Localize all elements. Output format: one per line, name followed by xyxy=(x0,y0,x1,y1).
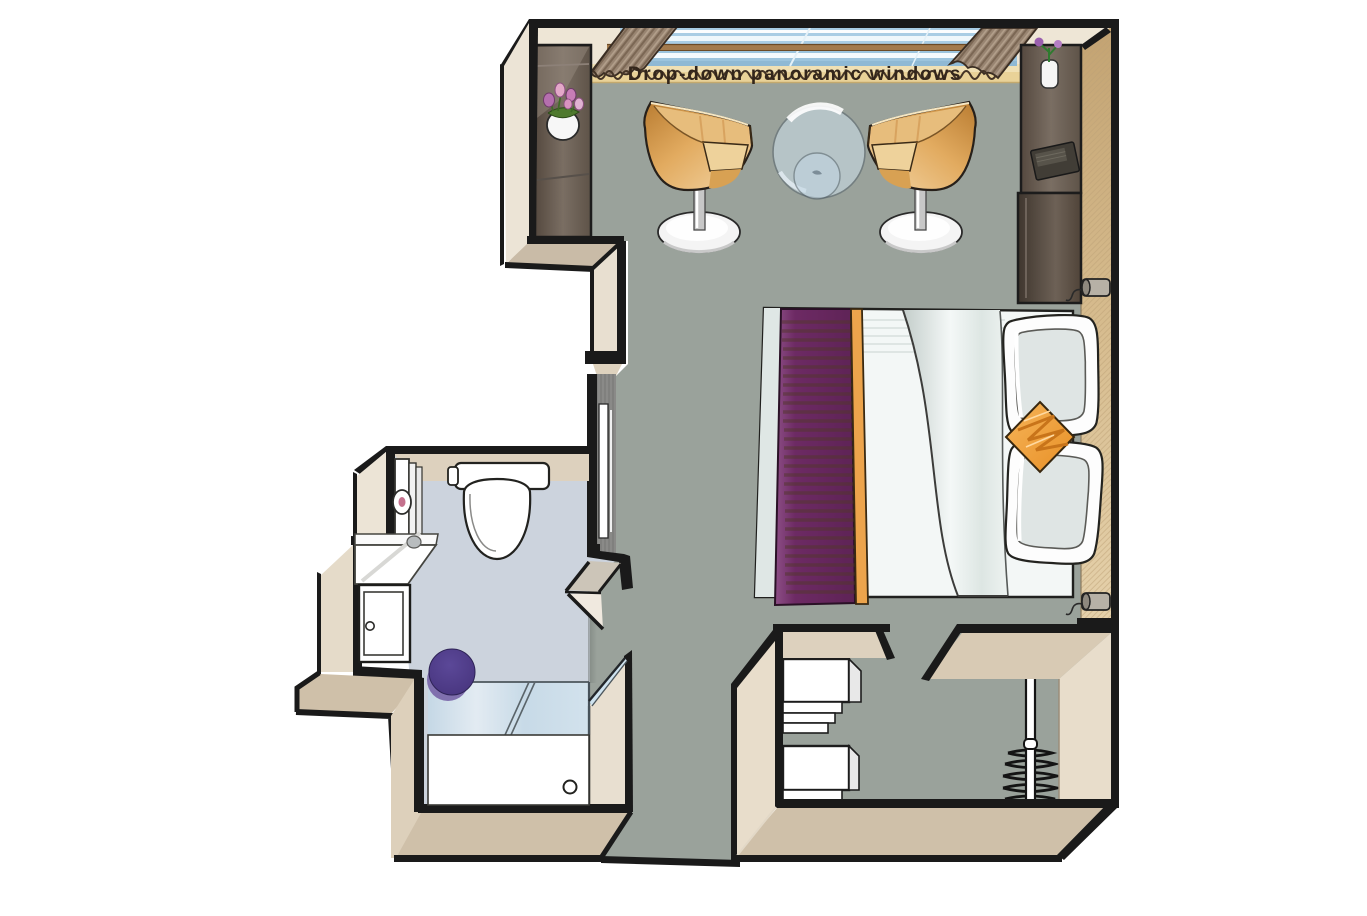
svg-text:Drop-down panoramic windows: Drop-down panoramic windows xyxy=(628,64,962,85)
